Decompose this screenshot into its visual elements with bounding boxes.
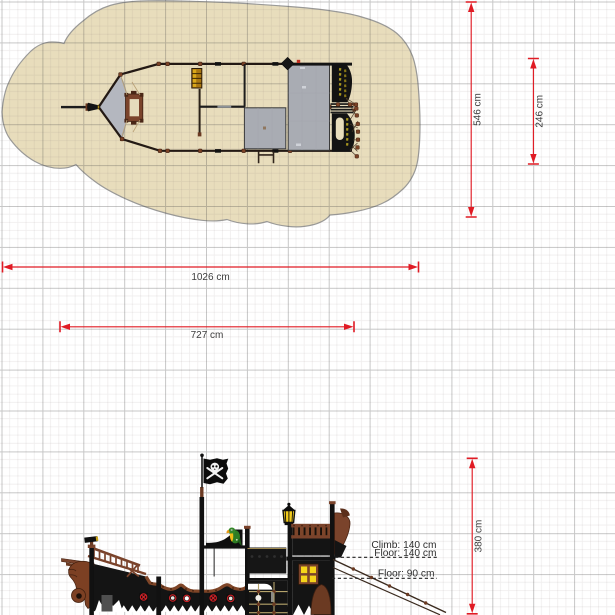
svg-text:Floor: 90 cm: Floor: 90 cm xyxy=(378,569,435,580)
svg-text:Floor: 140 cm: Floor: 140 cm xyxy=(374,548,436,559)
svg-text:380 cm: 380 cm xyxy=(474,520,485,553)
svg-text:727 cm: 727 cm xyxy=(191,330,224,341)
svg-text:546 cm: 546 cm xyxy=(473,93,484,126)
svg-text:246 cm: 246 cm xyxy=(535,95,546,128)
svg-text:1026 cm: 1026 cm xyxy=(191,272,229,283)
